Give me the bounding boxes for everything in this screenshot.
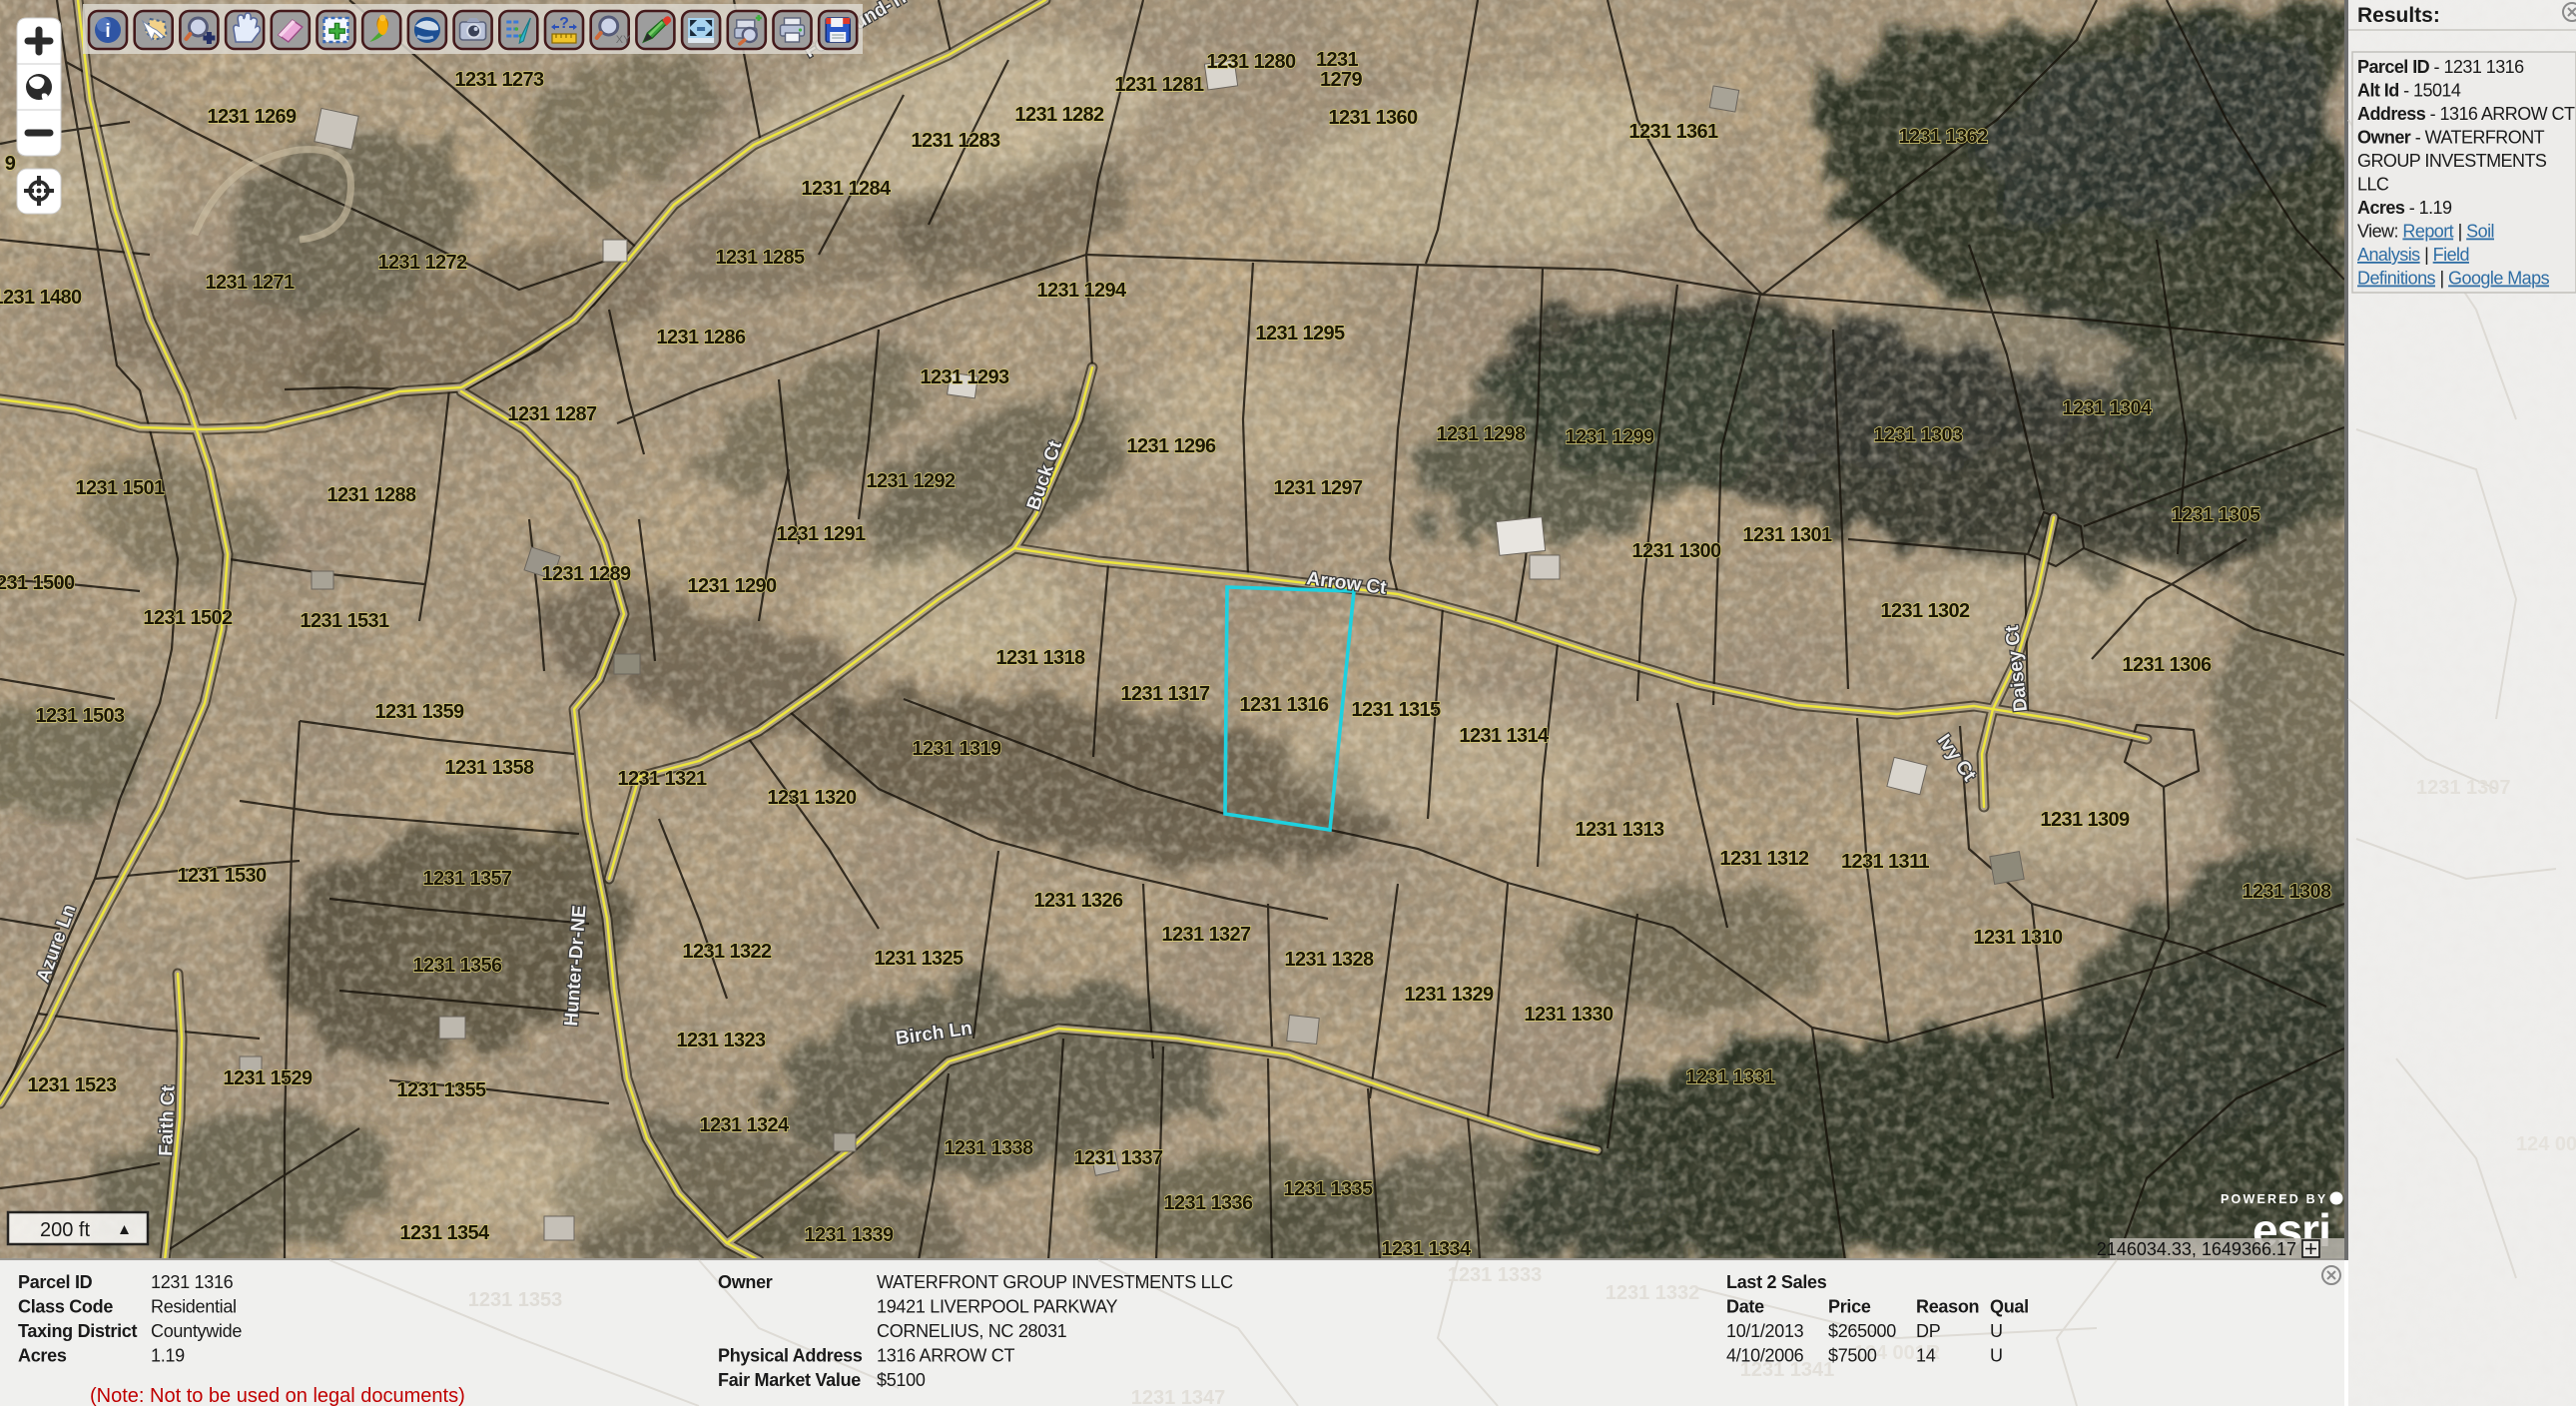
svg-text:1231 1325: 1231 1325 [874, 948, 964, 970]
svg-text:1231 1303: 1231 1303 [1873, 424, 1963, 446]
svg-text:View: Report | Soil: View: Report | Soil [2357, 222, 2494, 242]
svg-text:Faith Ct: Faith Ct [156, 1084, 179, 1156]
svg-text:1231 1333: 1231 1333 [1448, 1264, 1543, 1286]
svg-text:Physical Address: Physical Address [718, 1346, 863, 1366]
svg-text:1231 1480: 1231 1480 [0, 287, 82, 309]
svg-text:1231 1501: 1231 1501 [75, 477, 165, 499]
svg-text:1231 1308: 1231 1308 [2242, 881, 2331, 903]
svg-text:9: 9 [5, 153, 16, 175]
svg-text:U: U [1990, 1346, 2003, 1366]
svg-text:XY: XY [616, 34, 631, 46]
svg-text:Qual: Qual [1990, 1297, 2029, 1317]
svg-text:1231 1297: 1231 1297 [1273, 477, 1363, 499]
svg-text:1231 1293: 1231 1293 [920, 366, 1009, 388]
svg-text:Price: Price [1828, 1297, 1871, 1317]
svg-text:14: 14 [1916, 1346, 1936, 1366]
svg-text:1231 1500: 1231 1500 [0, 572, 75, 594]
svg-text:1231 1310: 1231 1310 [1973, 927, 2063, 949]
svg-text:1231 1304: 1231 1304 [2062, 397, 2153, 419]
svg-text:1231 1296: 1231 1296 [1126, 435, 1216, 457]
svg-text:1231 1357: 1231 1357 [422, 868, 512, 890]
svg-text:1231 1295: 1231 1295 [1255, 323, 1345, 345]
svg-text:Acres - 1.19: Acres - 1.19 [2357, 198, 2452, 218]
svg-text:1231 1294: 1231 1294 [1036, 280, 1127, 302]
svg-text:1231 1282: 1231 1282 [1014, 104, 1104, 126]
svg-text:1231 1321: 1231 1321 [617, 768, 707, 790]
svg-text:Address - 1316 ARROW CT: Address - 1316 ARROW CT [2357, 104, 2575, 124]
svg-text:1.19: 1.19 [151, 1346, 185, 1366]
svg-text:1231 1284: 1231 1284 [801, 178, 892, 200]
svg-text:1231 1273: 1231 1273 [454, 69, 544, 91]
svg-text:Fair Market Value: Fair Market Value [718, 1370, 861, 1390]
svg-text:1231 1322: 1231 1322 [682, 941, 772, 963]
svg-text:1231 1530: 1231 1530 [177, 865, 267, 887]
svg-text:1231 1318: 1231 1318 [995, 647, 1085, 669]
svg-text:1231 1301: 1231 1301 [1742, 524, 1832, 546]
svg-text:1231 1314: 1231 1314 [1459, 725, 1550, 747]
svg-text:CORNELIUS, NC 28031: CORNELIUS, NC 28031 [877, 1321, 1067, 1341]
svg-text:1231 1355: 1231 1355 [396, 1079, 486, 1101]
svg-text:1231 1298: 1231 1298 [1436, 423, 1526, 445]
svg-text:1231 1286: 1231 1286 [656, 327, 746, 349]
svg-text:1279: 1279 [1320, 69, 1363, 91]
svg-text:1231 1324: 1231 1324 [699, 1114, 790, 1136]
svg-text:1316 ARROW CT: 1316 ARROW CT [877, 1346, 1014, 1366]
svg-text:19421 LIVERPOOL PARKWAY: 19421 LIVERPOOL PARKWAY [877, 1297, 1118, 1317]
svg-text:1231 1319: 1231 1319 [912, 738, 1001, 760]
svg-text:1231 1291: 1231 1291 [776, 523, 866, 545]
svg-text:Owner: Owner [718, 1272, 773, 1292]
svg-text:Analysis | Field: Analysis | Field [2357, 245, 2469, 265]
svg-text:1231 1361: 1231 1361 [1628, 121, 1718, 143]
svg-text:1231 1356: 1231 1356 [412, 955, 502, 977]
svg-text:1231 1285: 1231 1285 [715, 247, 805, 269]
svg-text:1231 1269: 1231 1269 [207, 106, 297, 128]
svg-text:1231 1315: 1231 1315 [1351, 699, 1441, 721]
svg-text:1231 1311: 1231 1311 [1841, 851, 1930, 873]
svg-text:$7500: $7500 [1828, 1346, 1877, 1366]
svg-text:Alt Id - 15014: Alt Id - 15014 [2357, 81, 2461, 101]
svg-text:1231 1353: 1231 1353 [468, 1289, 563, 1311]
svg-text:124 00: 124 00 [2516, 1133, 2576, 1155]
svg-text:U: U [1990, 1321, 2003, 1341]
svg-text:4/10/2006: 4/10/2006 [1726, 1346, 1804, 1366]
svg-text:1231 1300: 1231 1300 [1631, 540, 1721, 562]
svg-text:1231 1529: 1231 1529 [223, 1067, 313, 1089]
svg-text:1231 1330: 1231 1330 [1524, 1004, 1613, 1026]
svg-text:1231 1306: 1231 1306 [2122, 654, 2212, 676]
svg-text:Definitions | Google Maps: Definitions | Google Maps [2357, 269, 2550, 289]
svg-text:1231 1327: 1231 1327 [1161, 924, 1251, 946]
svg-text:1231 1502: 1231 1502 [143, 607, 233, 629]
svg-text:1231 1503: 1231 1503 [35, 705, 125, 727]
svg-text:Last 2 Sales: Last 2 Sales [1726, 1272, 1827, 1292]
svg-text:1231 1316: 1231 1316 [1239, 694, 1329, 716]
svg-text:WATERFRONT GROUP INVESTMENTS L: WATERFRONT GROUP INVESTMENTS LLC [877, 1272, 1233, 1292]
svg-text:1231 1338: 1231 1338 [944, 1137, 1033, 1159]
svg-text:$5100: $5100 [877, 1370, 926, 1390]
svg-text:1231 1328: 1231 1328 [1284, 949, 1374, 971]
svg-text:1231 1320: 1231 1320 [767, 787, 857, 809]
svg-text:Acres: Acres [18, 1346, 67, 1366]
svg-text:1231 1354: 1231 1354 [399, 1222, 490, 1244]
svg-text:1231 1272: 1231 1272 [377, 252, 467, 274]
svg-text:1231 1360: 1231 1360 [1328, 107, 1418, 129]
svg-text:i: i [105, 21, 110, 42]
svg-text:LLC: LLC [2357, 175, 2389, 195]
svg-text:1231 1287: 1231 1287 [507, 403, 597, 425]
svg-text:1231 1337: 1231 1337 [1073, 1147, 1163, 1169]
svg-text:Parcel ID - 1231 1316: Parcel ID - 1231 1316 [2357, 57, 2524, 77]
svg-text:DP: DP [1916, 1321, 1941, 1341]
svg-text:1231 1331: 1231 1331 [1685, 1066, 1775, 1088]
svg-text:1231 1309: 1231 1309 [2040, 809, 2130, 831]
svg-text:Results:: Results: [2357, 4, 2440, 27]
svg-text:2146034.33, 1649366.17: 2146034.33, 1649366.17 [2097, 1239, 2296, 1259]
svg-text:1231 1288: 1231 1288 [326, 484, 416, 506]
svg-text:Residential: Residential [151, 1297, 237, 1317]
svg-text:1231 1316: 1231 1316 [151, 1272, 234, 1292]
svg-text:1231 1358: 1231 1358 [444, 757, 534, 779]
svg-text:1231 1362: 1231 1362 [1898, 126, 1988, 148]
svg-text:1231 1281: 1231 1281 [1114, 74, 1204, 96]
svg-text:1231 1317: 1231 1317 [1120, 683, 1210, 705]
svg-text:Countywide: Countywide [151, 1321, 242, 1341]
svg-text:1231 1335: 1231 1335 [1283, 1178, 1373, 1200]
svg-text:200 ft: 200 ft [40, 1219, 90, 1241]
svg-text:1231 1313: 1231 1313 [1575, 819, 1664, 841]
svg-text:?: ? [559, 15, 569, 32]
svg-text:1231 1347: 1231 1347 [1131, 1387, 1226, 1406]
svg-text:Taxing District: Taxing District [18, 1321, 137, 1341]
svg-text:1231 1339: 1231 1339 [804, 1224, 894, 1246]
svg-text:1231 1289: 1231 1289 [541, 563, 631, 585]
svg-text:Class Code: Class Code [18, 1297, 113, 1317]
svg-text:1231 1359: 1231 1359 [374, 701, 464, 723]
svg-text:1231: 1231 [1316, 49, 1359, 71]
svg-text:$265000: $265000 [1828, 1321, 1896, 1341]
svg-text:1231 1523: 1231 1523 [27, 1074, 117, 1096]
svg-text:1231 1271: 1231 1271 [205, 272, 295, 294]
svg-text:Date: Date [1726, 1297, 1764, 1317]
svg-text:Reason: Reason [1916, 1297, 1979, 1317]
svg-text:1231 1292: 1231 1292 [866, 470, 956, 492]
svg-text:1231 1312: 1231 1312 [1719, 848, 1809, 870]
svg-text:(Note: Not to be used on legal: (Note: Not to be used on legal documents… [90, 1385, 465, 1406]
svg-text:1231 1531: 1231 1531 [300, 610, 389, 632]
svg-text:GROUP INVESTMENTS: GROUP INVESTMENTS [2357, 151, 2547, 171]
svg-text:1231 1305: 1231 1305 [2171, 504, 2260, 526]
svg-text:1231 1323: 1231 1323 [676, 1030, 766, 1052]
svg-text:1231 1326: 1231 1326 [1033, 890, 1123, 912]
svg-text:1231 1307: 1231 1307 [2416, 777, 2511, 799]
svg-text:1231 1332: 1231 1332 [1606, 1282, 1700, 1304]
svg-text:Parcel ID: Parcel ID [18, 1272, 93, 1292]
svg-text:1231 1283: 1231 1283 [911, 130, 1000, 152]
svg-text:1231 1290: 1231 1290 [687, 575, 777, 597]
svg-text:1231 1329: 1231 1329 [1404, 984, 1494, 1006]
svg-text:1231 1299: 1231 1299 [1565, 426, 1654, 448]
svg-text:Owner - WATERFRONT: Owner - WATERFRONT [2357, 128, 2545, 148]
svg-text:10/1/2013: 10/1/2013 [1726, 1321, 1804, 1341]
svg-text:1231 1334: 1231 1334 [1381, 1238, 1472, 1260]
svg-text:1231 1302: 1231 1302 [1880, 600, 1970, 622]
svg-text:1231 1336: 1231 1336 [1163, 1192, 1253, 1214]
svg-text:1231 1280: 1231 1280 [1206, 51, 1296, 73]
